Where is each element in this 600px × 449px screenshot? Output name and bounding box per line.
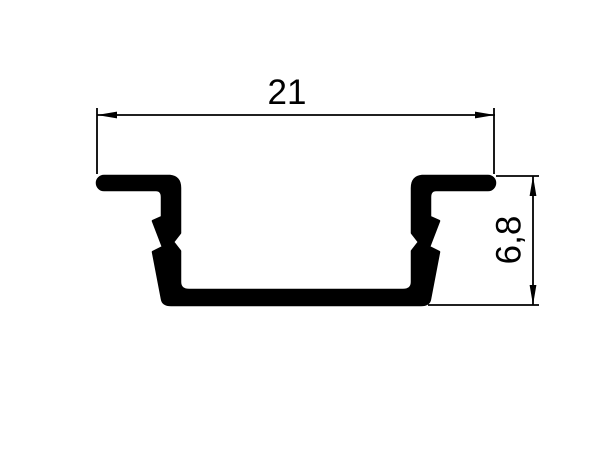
height-arrowhead-bottom: [530, 285, 537, 305]
drawing-page: 21 6,8: [0, 0, 600, 449]
width-arrowhead-left: [97, 112, 117, 119]
width-arrowhead-right: [475, 112, 495, 119]
profile-cross-section: [97, 176, 495, 305]
height-dimension-label: 6,8: [490, 216, 529, 265]
width-dimension: 21: [97, 73, 495, 174]
height-dimension: 6,8: [428, 176, 539, 305]
height-arrowhead-top: [530, 176, 537, 196]
width-dimension-label: 21: [268, 73, 307, 112]
drawing-canvas: 21 6,8: [0, 0, 600, 449]
